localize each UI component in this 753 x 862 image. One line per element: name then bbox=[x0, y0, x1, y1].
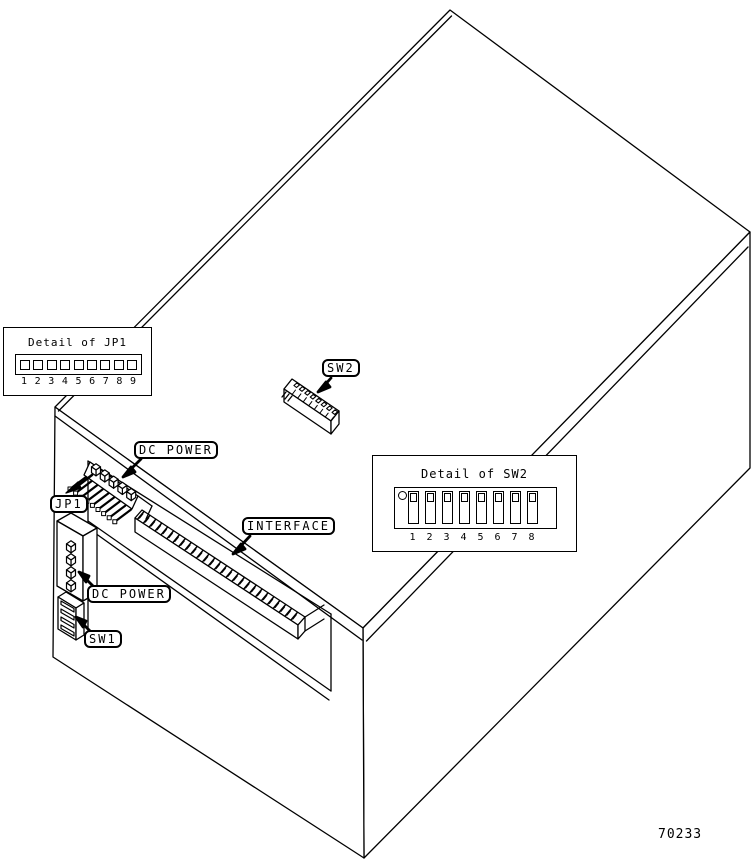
detail-of-sw2-inset: Detail of SW2 12345678 bbox=[372, 455, 577, 552]
sw2-switch-knob bbox=[512, 493, 519, 502]
sw2-switch-column bbox=[493, 491, 504, 524]
jp1-pin-row bbox=[15, 354, 142, 375]
jp1-pin-square bbox=[100, 360, 110, 370]
jp1-pin-square bbox=[74, 360, 84, 370]
sw2-switch-column bbox=[442, 491, 453, 524]
sw2-switch-number: 1 bbox=[407, 532, 418, 544]
jp1-pin-square bbox=[33, 360, 43, 370]
callout-jp1: JP1 bbox=[50, 495, 88, 513]
callout-sw2: SW2 bbox=[322, 359, 360, 377]
detail-sw2-title: Detail of SW2 bbox=[373, 467, 576, 481]
jp1-pin-number: 7 bbox=[101, 376, 111, 388]
sw2-switch-knob bbox=[444, 493, 451, 502]
jp1-pin-number: 3 bbox=[46, 376, 56, 388]
sw2-switch-row bbox=[408, 491, 538, 524]
jp1-pin-number: 2 bbox=[33, 376, 43, 388]
sw2-switch-number: 4 bbox=[458, 532, 469, 544]
sw2-switch-knob bbox=[495, 493, 502, 502]
sw2-switch-column bbox=[408, 491, 419, 524]
detail-of-jp1-inset: Detail of JP1 123456789 bbox=[3, 327, 152, 396]
sw2-switch-column bbox=[510, 491, 521, 524]
sw2-switch-number: 7 bbox=[509, 532, 520, 544]
jp1-pin-number: 6 bbox=[87, 376, 97, 388]
pin1-indicator-circle-icon bbox=[398, 491, 407, 500]
detail-jp1-title: Detail of JP1 bbox=[4, 336, 151, 349]
sw2-switch-number: 6 bbox=[492, 532, 503, 544]
jp1-pin-square bbox=[114, 360, 124, 370]
jp1-pin-square bbox=[127, 360, 137, 370]
sw2-switch-knob bbox=[461, 493, 468, 502]
jp1-pin-number: 8 bbox=[114, 376, 124, 388]
sw2-switch-body bbox=[394, 487, 557, 529]
jp1-pin-square bbox=[87, 360, 97, 370]
sw2-switch-knob bbox=[529, 493, 536, 502]
callout-interface: INTERFACE bbox=[242, 517, 335, 535]
sw2-switch-column bbox=[425, 491, 436, 524]
callout-dc-power-left: DC POWER bbox=[87, 585, 171, 603]
sw2-switch-number: 3 bbox=[441, 532, 452, 544]
sw2-switch-numbers: 12345678 bbox=[407, 532, 537, 544]
isometric-line-art bbox=[0, 0, 753, 862]
sw2-switch-knob bbox=[410, 493, 417, 502]
sw2-switch-column bbox=[527, 491, 538, 524]
sw2-switch-number: 8 bbox=[526, 532, 537, 544]
sw2-switch-column bbox=[476, 491, 487, 524]
jp1-pin-square bbox=[47, 360, 57, 370]
jp1-pin-numbers: 123456789 bbox=[15, 376, 142, 388]
jp1-pin-number: 4 bbox=[60, 376, 70, 388]
callout-dc-power-top: DC POWER bbox=[134, 441, 218, 459]
jp1-pin-number: 1 bbox=[19, 376, 29, 388]
callout-sw1: SW1 bbox=[84, 630, 122, 648]
sw2-switch-number: 5 bbox=[475, 532, 486, 544]
sw2-switch-number: 2 bbox=[424, 532, 435, 544]
jp1-pin-square bbox=[60, 360, 70, 370]
sw2-switch-knob bbox=[478, 493, 485, 502]
sw2-switch-column bbox=[459, 491, 470, 524]
figure-canvas: Detail of JP1 123456789 Detail of SW2 12… bbox=[0, 0, 753, 862]
jp1-pin-number: 5 bbox=[74, 376, 84, 388]
sw2-switch-knob bbox=[427, 493, 434, 502]
figure-part-number: 70233 bbox=[658, 827, 702, 842]
jp1-pin-number: 9 bbox=[128, 376, 138, 388]
jp1-pin-square bbox=[20, 360, 30, 370]
